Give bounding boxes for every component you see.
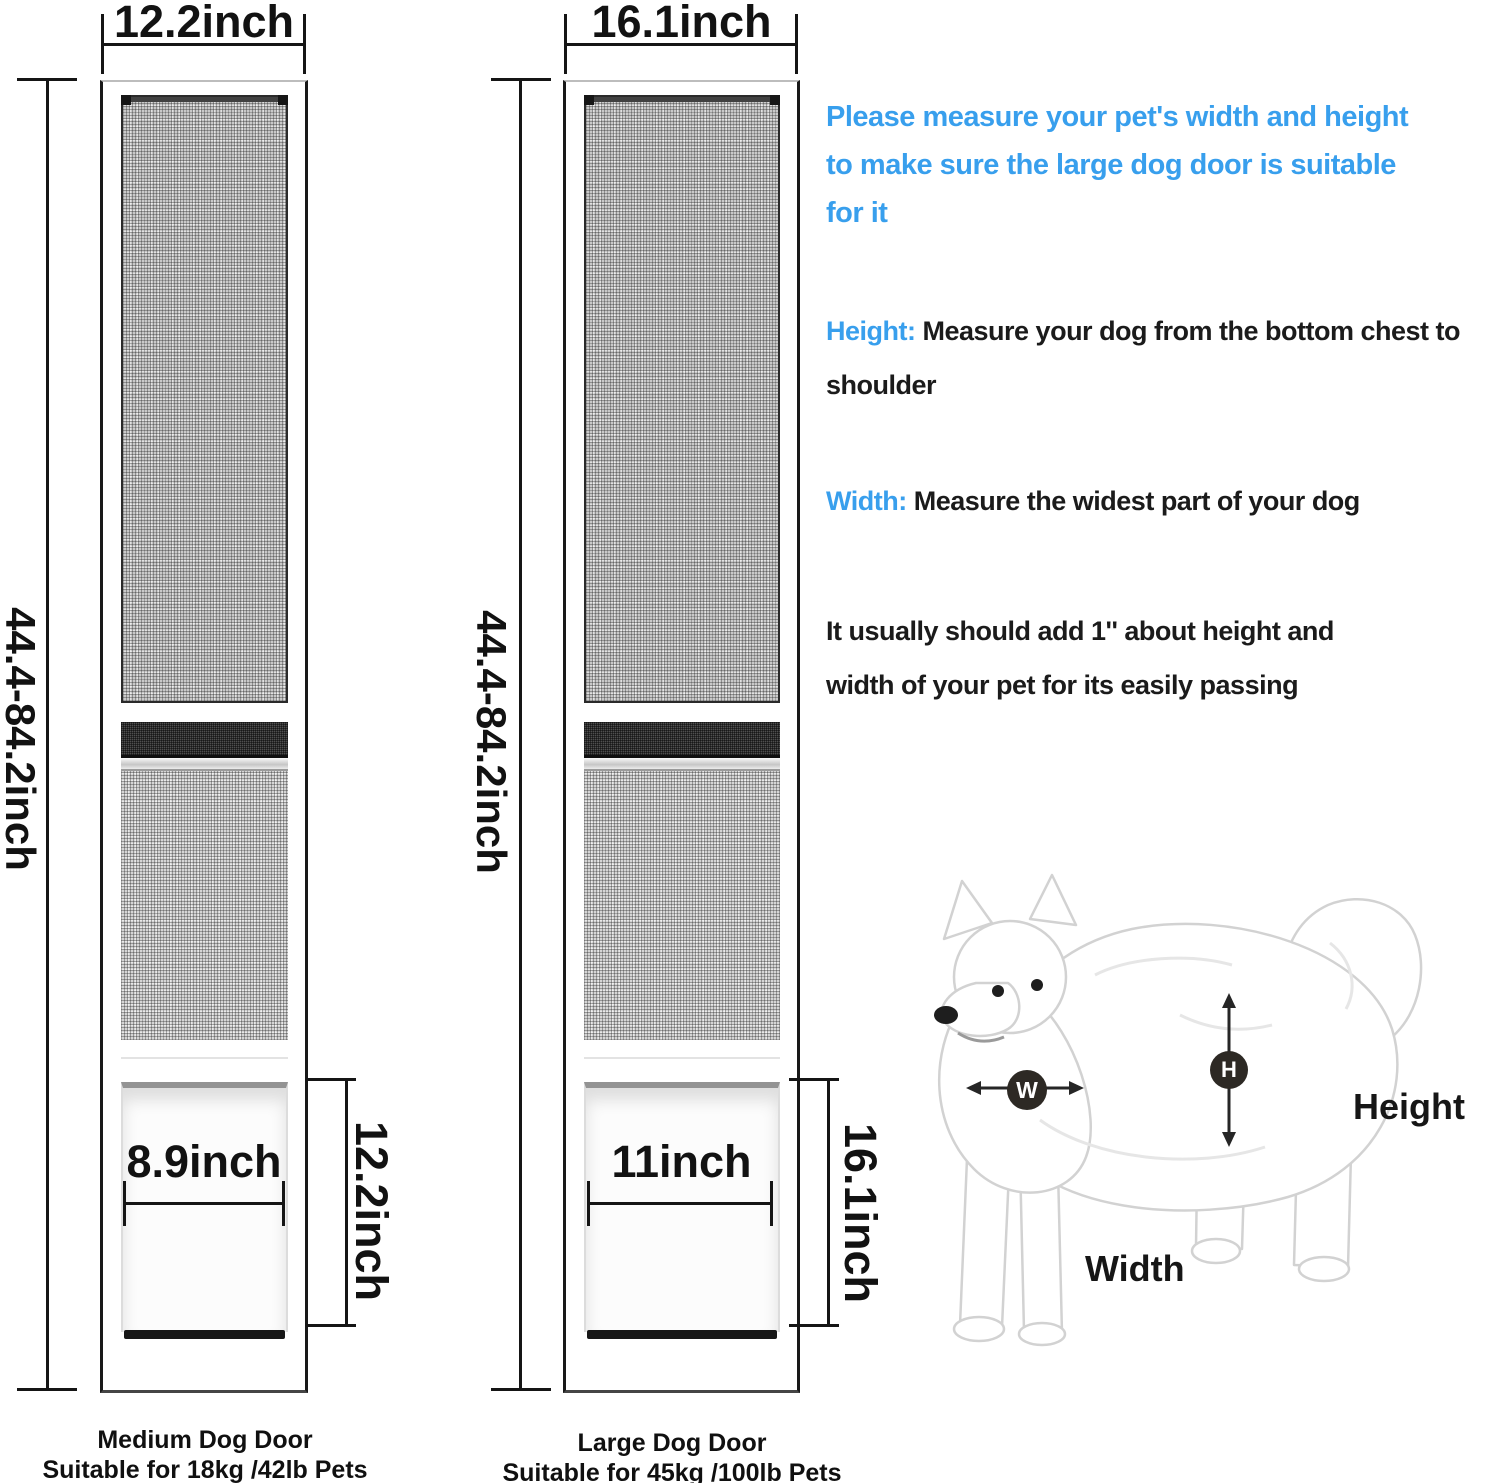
intro-paragraph: Please measure your pet's width and heig… [826, 93, 1408, 237]
large-door-caption-subtitle: Suitable for 45kg /100lb Pets [462, 1458, 882, 1483]
height-definition-line: Height: Measure your dog from the bottom… [826, 304, 1460, 358]
screen-top-rail [123, 97, 286, 102]
large-door-height-range-label: 44.4-84.2inch [465, 582, 517, 902]
dog-eye [992, 985, 1004, 997]
width-axis-label: Width [1085, 1248, 1185, 1290]
large-flap-width-dim-line [589, 1202, 773, 1205]
large-door-height-dim-line [519, 80, 522, 1391]
intro-line: for it [826, 189, 1408, 237]
medium-door-flap-opening [121, 1082, 288, 1332]
height-term: Height: [826, 316, 915, 346]
screen-corner-bracket [278, 95, 288, 105]
medium-door-height-range-label: 44.4-84.2inch [0, 579, 46, 899]
intro-line: Please measure your pet's width and heig… [826, 93, 1408, 141]
sizing-note-line: It usually should add 1'' about height a… [826, 604, 1334, 658]
width-term: Width: [826, 486, 907, 516]
medium-flap-height-tick-top [306, 1078, 356, 1081]
medium-flap-width-tick-left [123, 1181, 126, 1226]
screen-mesh [121, 771, 288, 1040]
large-flap-width-tick-left [587, 1181, 590, 1226]
large-flap-height-tick-bottom [789, 1324, 839, 1327]
screen-slide-rail [121, 758, 288, 769]
medium-door-top-dim-tick-right [303, 14, 306, 74]
height-definition-line: shoulder [826, 358, 1460, 412]
large-flap-height-label: 16.1inch [834, 1103, 886, 1323]
medium-flap-height-tick-bottom [306, 1324, 356, 1327]
medium-flap-width-tick-right [282, 1181, 285, 1226]
screen-corner-bracket [121, 95, 131, 105]
large-dog-door [563, 80, 800, 1393]
medium-door-caption: Medium Dog Door Suitable for 18kg /42lb … [0, 1425, 415, 1483]
infographic-canvas: 12.2inch 44.4-84.2inch 8.9inch 12.2inch … [0, 0, 1500, 1483]
medium-flap-width-label: 8.9inch [100, 1136, 308, 1188]
large-door-upper-screen [584, 95, 780, 703]
medium-door-caption-subtitle: Suitable for 18kg /42lb Pets [0, 1455, 415, 1483]
medium-door-top-dim-line [103, 43, 306, 46]
height-definition: Height: Measure your dog from the bottom… [826, 304, 1460, 412]
large-flap-height-dim-line [827, 1080, 830, 1326]
width-badge: W [1007, 1070, 1047, 1110]
large-door-caption-title: Large Dog Door [462, 1428, 882, 1458]
large-door-caption: Large Dog Door Suitable for 45kg /100lb … [462, 1428, 882, 1483]
medium-door-caption-title: Medium Dog Door [0, 1425, 415, 1455]
sizing-note-line: width of your pet for its easily passing [826, 658, 1334, 712]
height-badge: H [1210, 1051, 1248, 1089]
dog-eye [1031, 979, 1043, 991]
screen-corner-bracket [770, 95, 780, 105]
screen-dark-band [584, 722, 780, 755]
large-flap-width-tick-right [770, 1181, 773, 1226]
screen-top-rail [586, 97, 778, 102]
medium-door-height-dim-tick-bottom [17, 1388, 77, 1391]
medium-door-lower-screen [121, 722, 288, 1040]
screen-mesh [584, 771, 780, 1040]
screen-slide-rail [584, 758, 780, 769]
medium-door-upper-screen [121, 95, 288, 703]
dog-nose [934, 1006, 958, 1024]
sizing-note: It usually should add 1'' about height a… [826, 604, 1334, 712]
large-flap-height-tick-top [789, 1078, 839, 1081]
screen-corner-bracket [584, 95, 594, 105]
large-door-top-dim-tick-right [795, 14, 798, 74]
medium-door-height-dim-tick-top [17, 78, 77, 81]
screen-dark-band [121, 722, 288, 755]
large-door-top-width-label: 16.1inch [563, 0, 800, 48]
medium-door-top-width-label: 12.2inch [100, 0, 308, 48]
width-definition: Width: Measure the widest part of your d… [826, 474, 1360, 528]
large-door-height-dim-tick-bottom [491, 1388, 551, 1391]
large-door-top-dim-tick-left [564, 14, 567, 74]
height-axis-label: Height [1353, 1086, 1465, 1128]
door-trim-line [584, 1057, 780, 1059]
width-definition-line: Width: Measure the widest part of your d… [826, 474, 1360, 528]
width-desc: Measure the widest part of your dog [914, 486, 1360, 516]
medium-door-height-dim-line [46, 80, 49, 1391]
intro-line: to make sure the large dog door is suita… [826, 141, 1408, 189]
large-door-top-dim-line [566, 43, 797, 46]
medium-flap-width-dim-line [125, 1202, 285, 1205]
large-door-height-dim-tick-top [491, 78, 551, 81]
medium-flap-height-label: 12.2inch [345, 1101, 397, 1321]
large-door-lower-screen [584, 722, 780, 1040]
door-trim-line [121, 1057, 288, 1059]
medium-door-top-dim-tick-left [101, 14, 104, 74]
large-flap-width-label: 11inch [563, 1136, 800, 1188]
height-desc: Measure your dog from the bottom chest t… [923, 316, 1461, 346]
large-door-flap-bottom-bar [587, 1330, 777, 1339]
large-door-flap-opening [584, 1082, 780, 1332]
medium-dog-door [100, 80, 308, 1393]
medium-door-flap-bottom-bar [124, 1330, 285, 1339]
